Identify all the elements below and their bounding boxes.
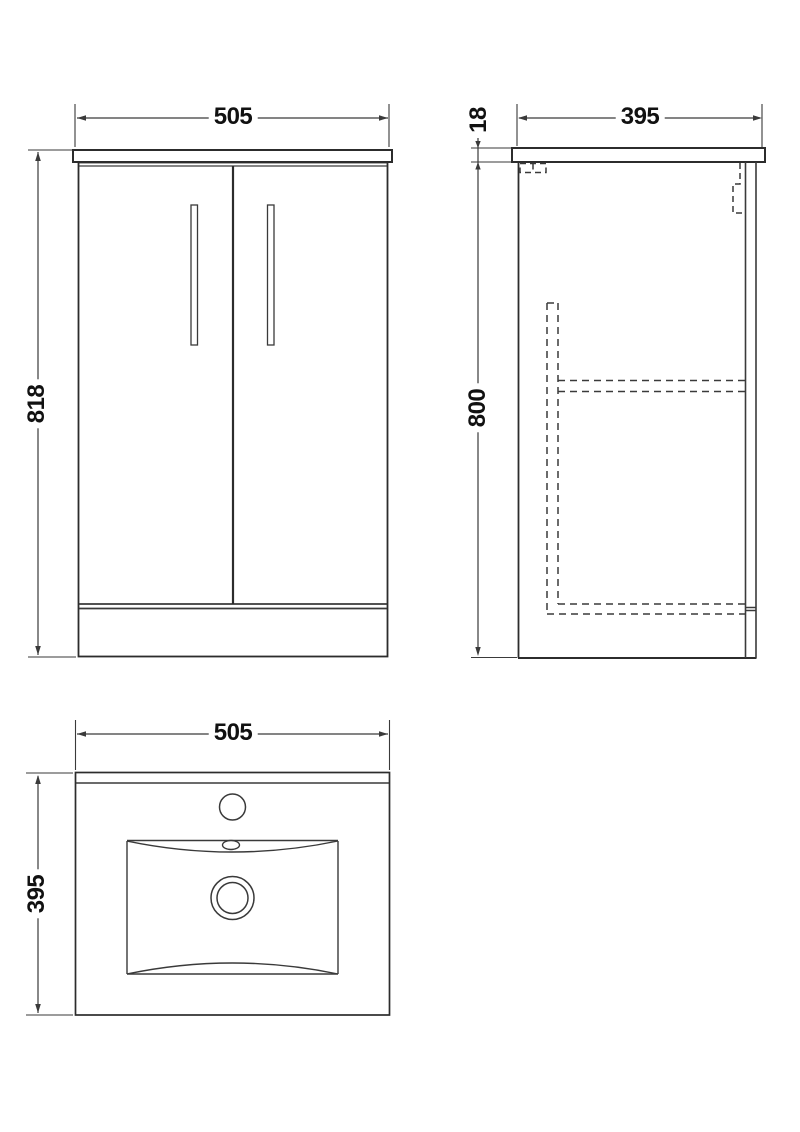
drawing-linework — [0, 0, 800, 1132]
front-view — [28, 104, 392, 657]
arrow-down-icon — [35, 1004, 41, 1013]
basin-top-outline — [76, 773, 390, 1016]
internal-panel-hidden-detail — [547, 303, 558, 614]
left-door-handle — [191, 205, 198, 345]
arrow-up-icon — [35, 152, 41, 161]
arrow-down-icon — [35, 646, 41, 655]
arrow-down-icon — [475, 647, 480, 656]
wall-bracket-hidden-detail — [520, 164, 546, 173]
shelf-hidden-detail — [558, 381, 745, 392]
arrow-right-icon — [379, 115, 388, 121]
side-height-dim-label: 800 — [465, 384, 491, 433]
right-door-handle — [268, 205, 275, 345]
basin-plan-view — [26, 720, 390, 1015]
front-height-dim-label: 818 — [24, 380, 50, 429]
arrow-up-icon — [35, 775, 41, 784]
vanity-technical-drawing: 505 818 395 18 800 505 395 — [0, 0, 800, 1132]
side-worktop-thickness-dim-label: 18 — [466, 102, 492, 138]
front-width-dim-label: 505 — [209, 104, 258, 130]
arrow-left-icon — [518, 115, 527, 121]
front-worktop — [73, 150, 392, 162]
arrow-down-icon — [475, 141, 480, 148]
side-depth-dim-label: 395 — [616, 104, 665, 130]
basin-bowl — [127, 841, 338, 975]
tap-hole — [220, 794, 246, 820]
arrow-left-icon — [77, 731, 86, 737]
drain-waste — [211, 877, 254, 920]
arrow-up-icon — [475, 162, 480, 170]
door-hinge-hidden-detail — [733, 163, 746, 213]
arrow-left-icon — [77, 115, 86, 121]
side-view — [471, 104, 765, 658]
overflow-slot — [223, 841, 240, 850]
basin-width-dim-label: 505 — [209, 720, 258, 746]
arrow-right-icon — [753, 115, 762, 121]
basin-depth-dim-label: 395 — [24, 870, 50, 919]
arrow-right-icon — [379, 731, 388, 737]
side-worktop — [512, 148, 765, 162]
bottom-panel-hidden-detail — [547, 604, 745, 614]
